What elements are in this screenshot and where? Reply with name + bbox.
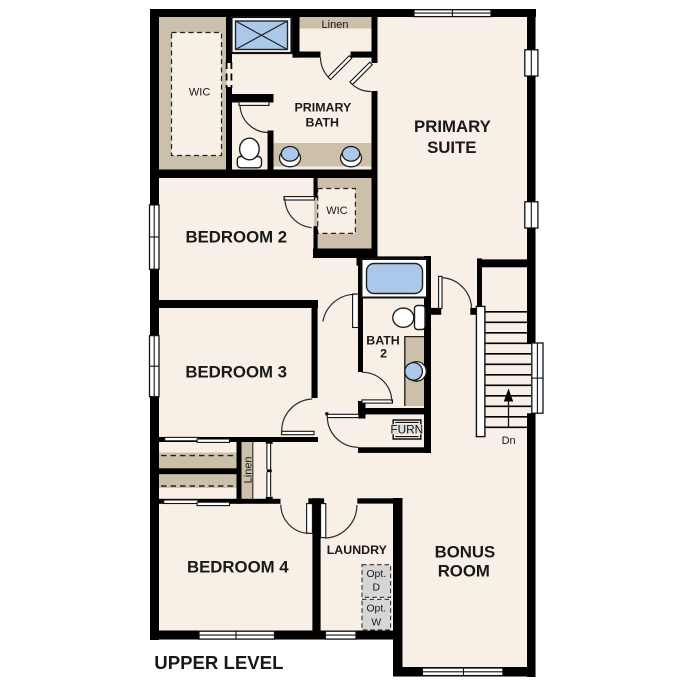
svg-text:D: D (373, 583, 381, 594)
svg-text:BATH: BATH (305, 116, 339, 130)
svg-text:BONUS: BONUS (435, 542, 496, 561)
svg-text:W: W (371, 617, 381, 628)
svg-text:PRIMARY: PRIMARY (295, 100, 352, 114)
svg-text:PRIMARY: PRIMARY (414, 117, 491, 136)
svg-text:LAUNDRY: LAUNDRY (327, 543, 388, 557)
svg-text:SUITE: SUITE (427, 138, 476, 157)
svg-text:WIC: WIC (189, 86, 210, 98)
svg-text:2: 2 (380, 346, 387, 360)
svg-text:BATH: BATH (366, 334, 400, 348)
svg-text:Linen: Linen (322, 19, 349, 31)
svg-text:BEDROOM 3: BEDROOM 3 (185, 363, 287, 382)
svg-text:Opt.: Opt. (366, 603, 386, 614)
svg-text:WIC: WIC (326, 205, 347, 217)
svg-text:ROOM: ROOM (438, 562, 490, 581)
svg-text:FURN: FURN (390, 422, 423, 436)
svg-text:BEDROOM 2: BEDROOM 2 (185, 227, 287, 246)
svg-text:UPPER LEVEL: UPPER LEVEL (154, 652, 283, 673)
svg-text:Opt.: Opt. (366, 569, 386, 580)
svg-text:Linen: Linen (243, 456, 255, 483)
svg-text:BEDROOM 4: BEDROOM 4 (187, 558, 289, 577)
svg-text:Dn: Dn (502, 435, 516, 447)
